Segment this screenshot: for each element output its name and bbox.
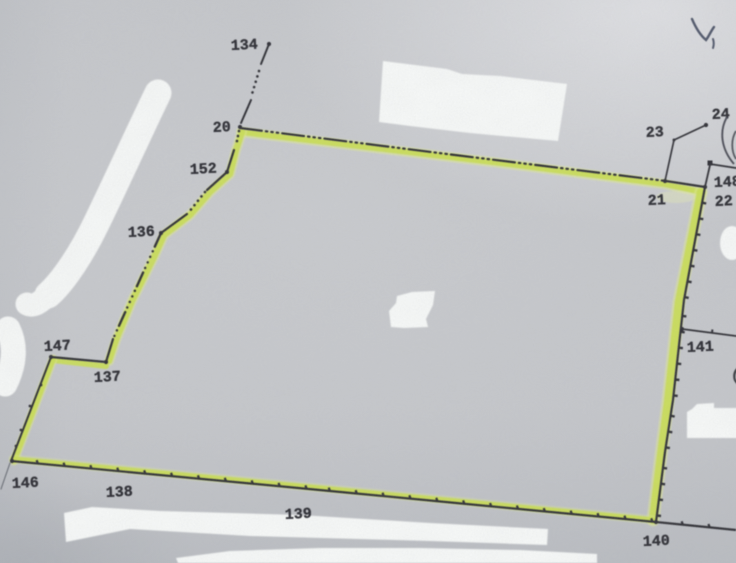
svg-text:22: 22	[714, 193, 733, 211]
svg-text:24: 24	[711, 106, 730, 124]
svg-text:134: 134	[230, 37, 258, 55]
svg-text:141: 141	[686, 339, 714, 357]
svg-text:23: 23	[645, 124, 664, 142]
svg-text:21: 21	[647, 192, 666, 210]
svg-text:152: 152	[189, 161, 217, 179]
svg-text:139: 139	[284, 506, 312, 524]
svg-text:146: 146	[11, 475, 39, 493]
svg-text:137: 137	[93, 369, 121, 387]
svg-text:148: 148	[713, 174, 736, 192]
svg-text:20: 20	[212, 119, 231, 137]
svg-text:140: 140	[642, 533, 670, 551]
svg-text:147: 147	[43, 338, 71, 356]
svg-text:136: 136	[127, 224, 155, 242]
svg-text:138: 138	[105, 484, 133, 502]
